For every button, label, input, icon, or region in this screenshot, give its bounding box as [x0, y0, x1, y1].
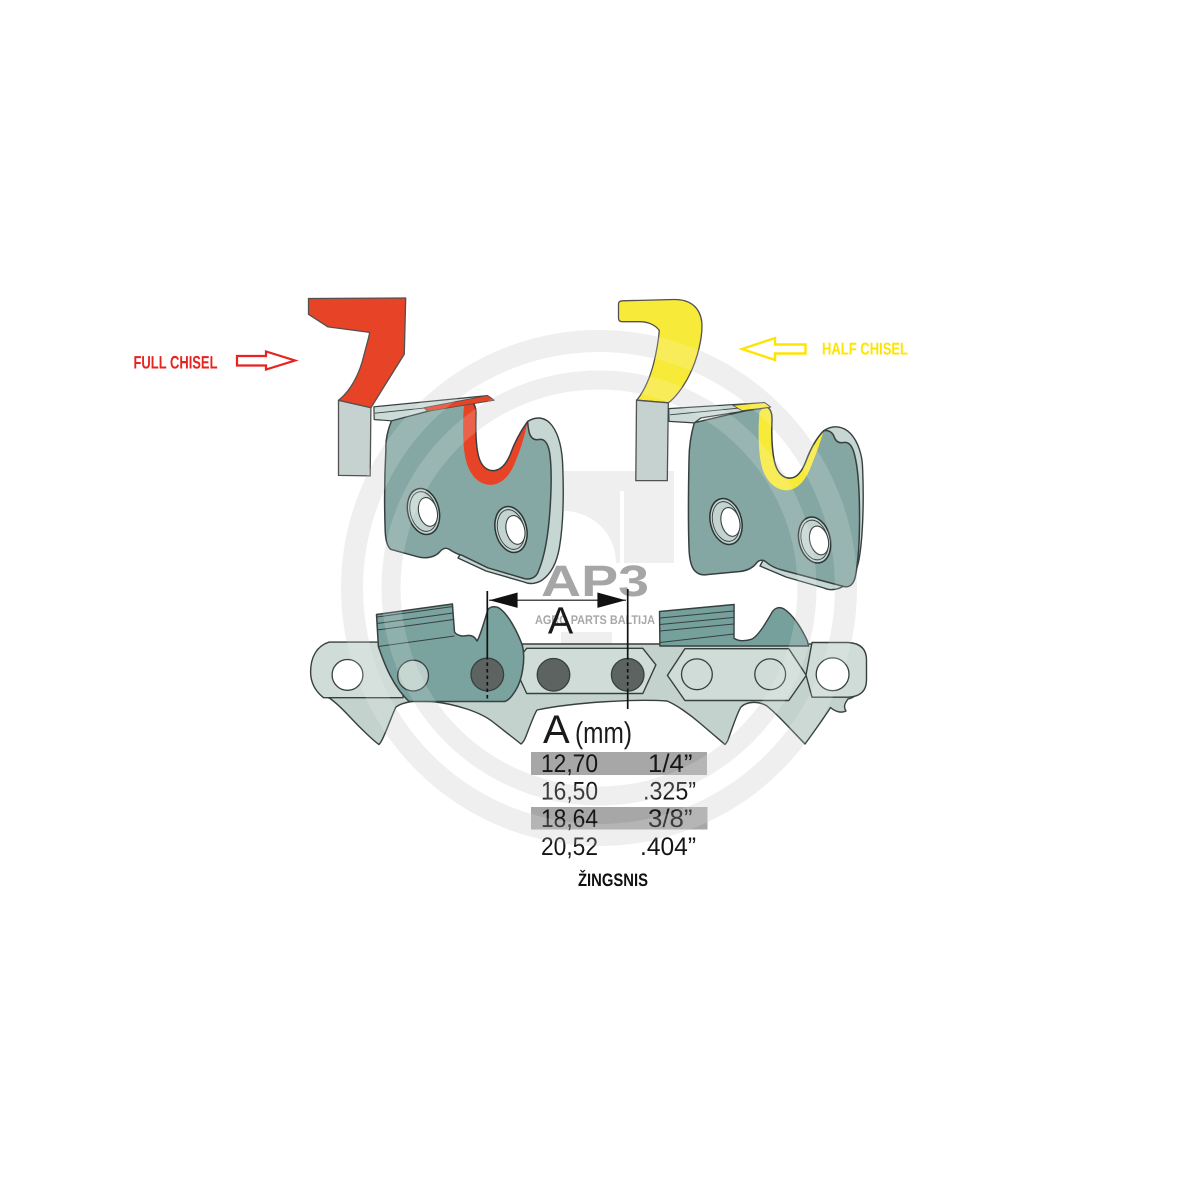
svg-text:HALF CHISEL: HALF CHISEL	[822, 340, 908, 359]
svg-text:A: A	[548, 601, 574, 643]
svg-text:12,70: 12,70	[541, 750, 598, 778]
svg-text:(mm): (mm)	[575, 717, 632, 750]
svg-text:AP3: AP3	[541, 557, 649, 606]
svg-text:A: A	[543, 708, 570, 752]
svg-text:ŽINGSNIS: ŽINGSNIS	[578, 869, 648, 890]
svg-text:FULL CHISEL: FULL CHISEL	[134, 353, 218, 373]
